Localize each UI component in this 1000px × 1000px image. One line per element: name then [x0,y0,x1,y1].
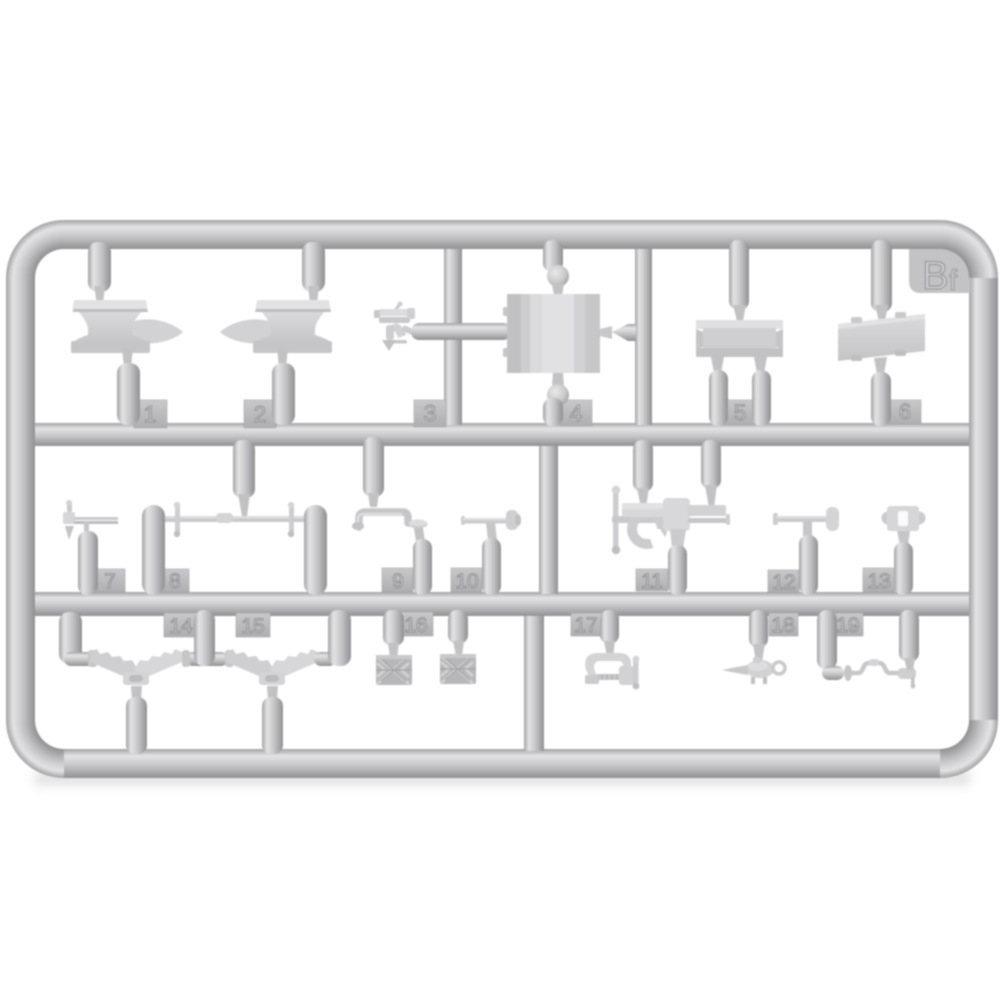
svg-text:7: 7 [104,570,116,593]
svg-text:10: 10 [455,570,478,593]
svg-text:12: 12 [772,571,795,594]
svg-text:3: 3 [424,400,437,426]
svg-text:9: 9 [392,570,404,593]
svg-text:13: 13 [867,570,890,593]
svg-text:19: 19 [836,614,859,637]
svg-text:2: 2 [254,401,267,427]
svg-text:11: 11 [641,570,663,593]
svg-text:f: f [949,265,958,297]
svg-text:4: 4 [570,400,583,426]
svg-text:18: 18 [771,614,794,637]
svg-text:6: 6 [899,399,911,424]
svg-text:1: 1 [144,401,157,427]
svg-text:15: 15 [241,615,264,638]
svg-text:5: 5 [734,400,746,425]
svg-text:17: 17 [574,614,597,637]
svg-text:14: 14 [169,615,193,638]
svg-text:8: 8 [169,570,181,593]
svg-text:B: B [922,254,949,298]
svg-text:16: 16 [404,614,427,637]
